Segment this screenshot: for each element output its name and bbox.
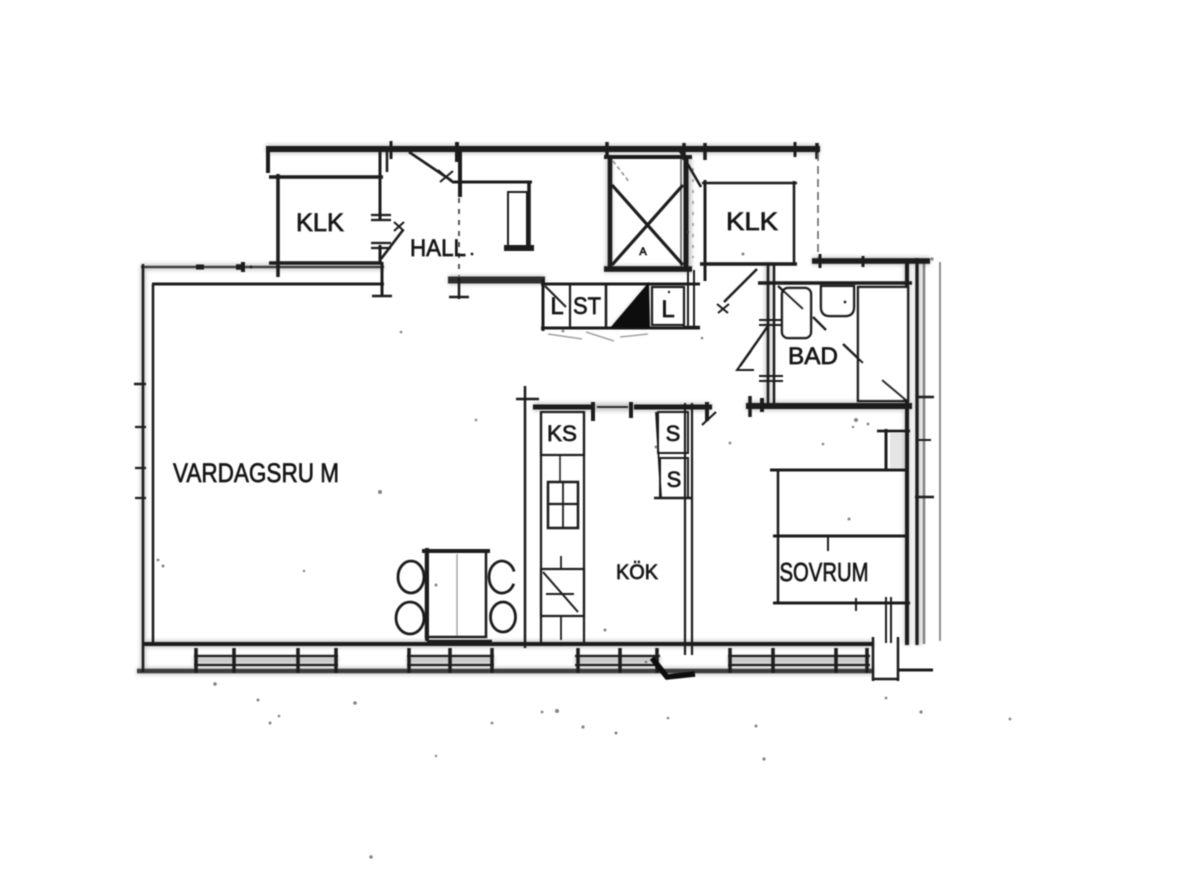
svg-text:BAD: BAD: [788, 343, 838, 370]
svg-text:KÖK: KÖK: [616, 561, 658, 584]
svg-text:S: S: [667, 467, 682, 492]
svg-text:ST: ST: [573, 293, 601, 320]
svg-text:L: L: [550, 293, 563, 320]
svg-text:KLK: KLK: [296, 209, 344, 237]
svg-text:KS: KS: [547, 421, 577, 446]
svg-text:KLK: KLK: [726, 208, 778, 236]
svg-text:S: S: [666, 421, 681, 446]
svg-text:HALL: HALL: [410, 235, 466, 262]
svg-text:A: A: [639, 246, 647, 258]
svg-text:VARDAGSRU M: VARDAGSRU M: [173, 458, 339, 488]
svg-text:L: L: [661, 296, 674, 323]
svg-text:SOVRUM: SOVRUM: [780, 557, 869, 587]
